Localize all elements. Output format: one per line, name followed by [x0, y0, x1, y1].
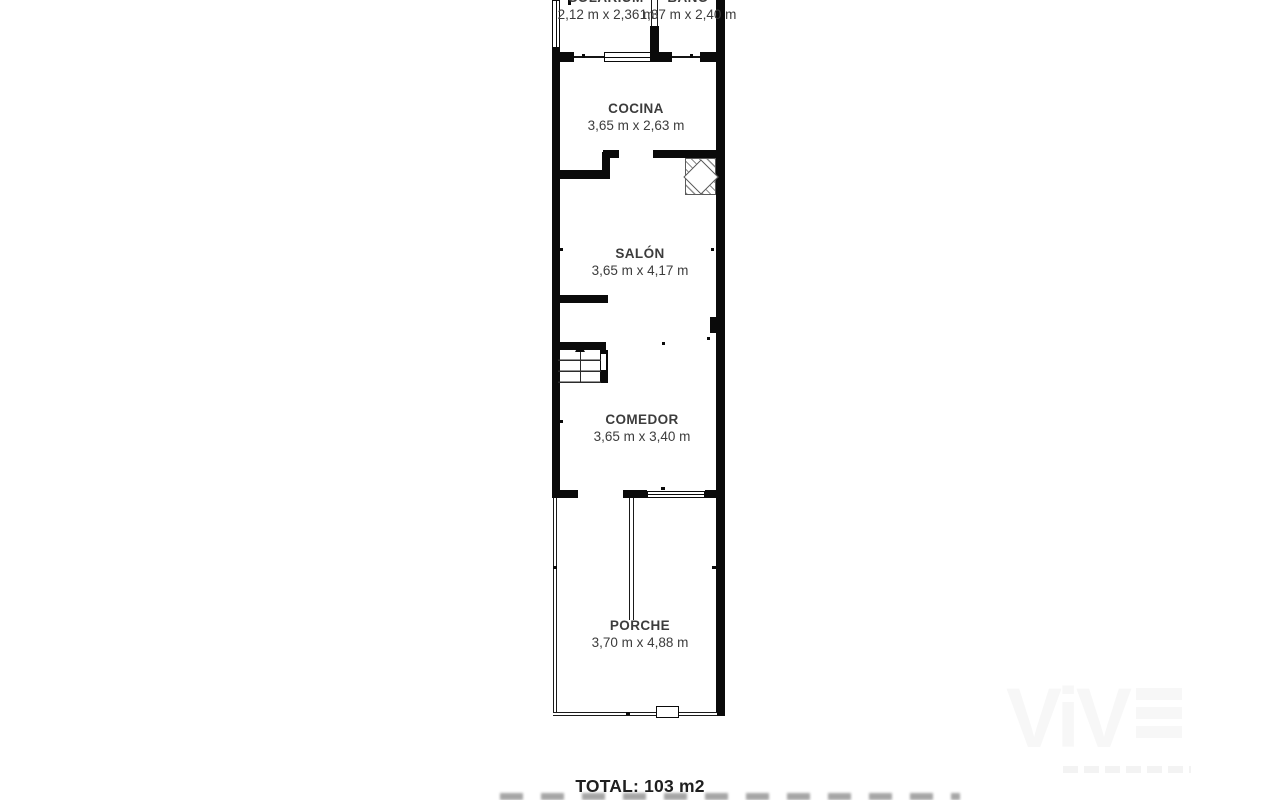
- room-label-salon: SALÓN 3,65 m x 4,17 m: [580, 247, 700, 278]
- stairs-door-slot: [601, 354, 606, 370]
- tick-mark: [690, 54, 693, 58]
- room-name-comedor: COMEDOR: [582, 413, 702, 428]
- watermark-logo: ViV: [1006, 682, 1182, 754]
- wall-segment: [653, 150, 716, 158]
- wall-segment-right: [716, 0, 725, 716]
- room-label-cocina: COCINA 3,65 m x 2,63 m: [576, 102, 696, 133]
- watermark-text: ViV: [1006, 682, 1128, 754]
- room-label-bano: BAÑO 1,37 m x 2,40 m: [632, 0, 744, 22]
- tick-mark: [626, 712, 630, 715]
- room-name-bano: BAÑO: [632, 0, 744, 6]
- tick-mark: [553, 566, 557, 569]
- wall-divider-solarium-bano: [650, 26, 659, 54]
- wall-segment: [705, 490, 716, 498]
- watermark-tagline: [1063, 766, 1191, 773]
- wall-segment: [700, 52, 716, 62]
- wall-segment-left: [552, 48, 560, 498]
- door-sill: [672, 56, 702, 58]
- tick-mark: [662, 342, 665, 345]
- porch-wall-bottom: [553, 712, 717, 716]
- wall-segment: [552, 52, 574, 62]
- watermark-e-glyph: [1136, 688, 1182, 742]
- sliding-door-symbol: [647, 491, 705, 498]
- tick-mark: [707, 337, 710, 340]
- room-dims-bano: 1,37 m x 2,40 m: [632, 8, 744, 23]
- staircase-mid-line: [580, 350, 581, 383]
- tick-mark: [560, 248, 563, 251]
- floorplan-canvas: SOLARIUM 2,12 m x 2,36 m BAÑO 1,37 m x 2…: [0, 0, 1280, 800]
- pillar-diamond: [683, 160, 718, 195]
- door-sill: [574, 56, 604, 58]
- room-name-salon: SALÓN: [580, 247, 700, 262]
- wall-stub-salon-comedor: [552, 295, 608, 303]
- room-dims-salon: 3,65 m x 4,17 m: [580, 264, 700, 279]
- room-dims-cocina: 3,65 m x 2,63 m: [576, 119, 696, 134]
- stairs-up-arrow-icon: [575, 343, 585, 352]
- porch-gate-symbol: [656, 706, 679, 718]
- tick-mark: [711, 248, 714, 251]
- tick-mark: [560, 420, 563, 423]
- tick-mark: [582, 54, 585, 58]
- pillar-hatch-symbol: [685, 158, 716, 195]
- cutoff-text-strip: [500, 793, 960, 800]
- porch-wall-left: [553, 498, 557, 716]
- room-name-porche: PORCHE: [580, 619, 700, 634]
- tick-mark: [661, 487, 665, 490]
- room-label-porche: PORCHE 3,70 m x 4,88 m: [580, 619, 700, 650]
- porch-divider: [629, 498, 634, 620]
- wall-segment: [552, 490, 578, 498]
- room-dims-comedor: 3,65 m x 3,40 m: [582, 430, 702, 445]
- room-dims-porche: 3,70 m x 4,88 m: [580, 636, 700, 651]
- tick-mark: [712, 566, 716, 569]
- room-name-cocina: COCINA: [576, 102, 696, 117]
- room-label-comedor: COMEDOR 3,65 m x 3,40 m: [582, 413, 702, 444]
- wall-segment: [650, 52, 672, 62]
- wall-segment: [623, 490, 647, 498]
- tick-mark: [581, 172, 584, 175]
- wall-pillar-right: [710, 317, 718, 333]
- window-symbol-cocina-top: [604, 52, 651, 62]
